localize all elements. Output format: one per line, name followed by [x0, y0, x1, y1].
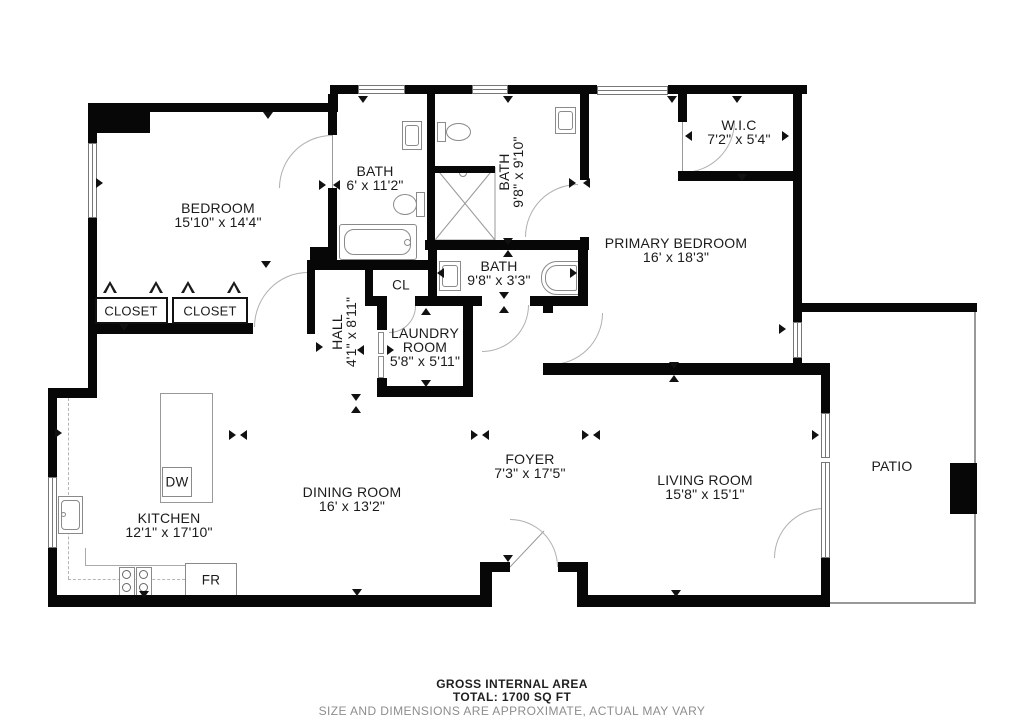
wall [678, 94, 687, 122]
fr-label: FR [202, 573, 220, 588]
marker-icon [499, 292, 509, 299]
marker-icon [139, 591, 149, 598]
sliding-door-window [821, 462, 830, 558]
room-name: LIVING ROOM [657, 473, 753, 487]
room-name: KITCHEN [125, 511, 212, 525]
marker-icon [669, 362, 679, 369]
room-name: BATH [497, 136, 511, 207]
counter-line [85, 548, 86, 565]
wall [377, 296, 387, 330]
wall [88, 103, 333, 112]
closet-label: CLOSET [104, 304, 157, 319]
wall [577, 562, 588, 607]
toilet-bowl [446, 123, 471, 141]
footer-disclaimer: SIZE AND DIMENSIONS ARE APPROXIMATE, ACT… [0, 705, 1024, 718]
bathtub-inner [344, 229, 411, 255]
room-dims: 9'8" x 3'3" [467, 273, 530, 287]
wall [580, 94, 589, 180]
wall [88, 323, 253, 334]
closet-label: CLOSET [183, 304, 236, 319]
marker-icon [499, 306, 509, 313]
room-dims: 7'2" x 5'4" [707, 132, 770, 146]
wall [330, 85, 358, 94]
marker-icon [333, 180, 340, 190]
door-arc [254, 272, 308, 327]
patio-column [950, 463, 977, 514]
room-dims: 16' x 13'2" [303, 499, 402, 513]
faucet-icon [404, 239, 411, 246]
room-dims: 4'1" x 8'11" [344, 297, 358, 367]
room-dims: 7'3" x 17'5" [494, 466, 565, 480]
marker-icon [669, 375, 679, 382]
room-name: FOYER [494, 452, 565, 466]
cl-label: CL [392, 278, 410, 293]
room-name: W.I.C [707, 118, 770, 132]
wall [328, 94, 337, 135]
wall [427, 166, 495, 173]
marker-icon [437, 268, 444, 278]
marker-icon [779, 324, 786, 334]
marker-icon [119, 324, 129, 331]
marker-icon [261, 261, 271, 268]
room-dims: 16' x 18'3" [605, 250, 748, 264]
room-label-hall: HALL 4'1" x 8'11" [330, 297, 358, 367]
room-label-bedroom: BEDROOM 15'10" x 14'4" [174, 201, 261, 229]
burner-icon [139, 570, 148, 579]
wall [415, 296, 463, 306]
toilet-tank [416, 192, 425, 217]
wall [543, 363, 830, 375]
marker-icon [570, 268, 577, 278]
sink-basin [405, 125, 419, 146]
room-label-dining: DINING ROOM 16' x 13'2" [303, 485, 402, 513]
room-name: PRIMARY BEDROOM [605, 236, 748, 250]
room-label-bath1: BATH 6' x 11'2" [346, 164, 403, 192]
room-dims: 6' x 11'2" [346, 178, 403, 192]
wall [307, 270, 315, 334]
marker-icon [351, 406, 361, 413]
room-label-living: LIVING ROOM 15'8" x 15'1" [657, 473, 753, 501]
burner-icon [122, 583, 131, 592]
room-name: BATH [346, 164, 403, 178]
marker-icon [229, 430, 236, 440]
marker-icon [471, 430, 478, 440]
faucet-icon [61, 512, 66, 517]
wall [793, 85, 802, 312]
sink-basin [442, 265, 458, 287]
footer: GROSS INTERNAL AREA TOTAL: 1700 SQ FT SI… [0, 678, 1024, 718]
wall [793, 312, 802, 322]
marker-icon [582, 430, 589, 440]
wall [558, 562, 577, 572]
marker-icon [263, 112, 273, 119]
window [597, 86, 668, 95]
hanger-icon [181, 281, 195, 293]
counter-line [68, 398, 69, 579]
marker-icon [732, 96, 742, 103]
wall [543, 296, 553, 313]
marker-icon [421, 308, 431, 315]
marker-icon [316, 342, 323, 352]
marker-icon [358, 96, 368, 103]
wall [428, 250, 437, 296]
marker-icon [685, 131, 692, 141]
room-label-foyer: FOYER 7'3" x 17'5" [494, 452, 565, 480]
window [48, 477, 57, 548]
wall [492, 562, 510, 572]
wall [48, 595, 480, 607]
window [358, 85, 405, 94]
room-name: BATH [467, 259, 530, 273]
window [793, 322, 802, 358]
marker-icon [352, 589, 362, 596]
marker-icon [96, 178, 103, 188]
hanger-icon [103, 281, 117, 293]
floor-plan: BEDROOM 15'10" x 14'4" BATH 6' x 11'2" B… [0, 0, 1024, 723]
wall [307, 260, 430, 270]
wall [668, 85, 807, 94]
toilet-tank [437, 122, 446, 142]
room-name: HALL [330, 297, 344, 367]
marker-icon [503, 238, 513, 245]
wall [480, 562, 492, 607]
marker-icon [671, 590, 681, 597]
room-label-patio: PATIO [872, 459, 913, 473]
door-arc [551, 313, 603, 365]
dw-label: DW [166, 475, 189, 490]
wall [328, 188, 337, 247]
marker-icon [593, 430, 600, 440]
room-dims: 15'8" x 15'1" [657, 487, 753, 501]
room-label-primary-bedroom: PRIMARY BEDROOM 16' x 18'3" [605, 236, 748, 264]
door-arc [774, 508, 824, 558]
marker-icon [812, 430, 819, 440]
wall [377, 386, 473, 397]
toilet-bowl [393, 194, 417, 215]
wall [578, 250, 588, 296]
marker-icon [240, 430, 247, 440]
marker-icon [503, 96, 513, 103]
marker-icon [503, 555, 513, 562]
wall [793, 303, 977, 312]
room-name: BEDROOM [174, 201, 261, 215]
room-dims: 15'10" x 14'4" [174, 215, 261, 229]
room-label-bath2: BATH 9'8" x 9'10" [497, 136, 525, 207]
wall [588, 595, 830, 607]
marker-icon [351, 394, 361, 401]
marker-icon [737, 174, 747, 181]
room-name: PATIO [872, 459, 913, 473]
hanger-icon [227, 281, 241, 293]
room-name: DINING ROOM [303, 485, 402, 499]
door-leaf [682, 120, 683, 171]
marker-icon [482, 430, 489, 440]
room-label-wic: W.I.C 7'2" x 5'4" [707, 118, 770, 146]
hanger-icon [149, 281, 163, 293]
room-dims: 9'8" x 9'10" [511, 136, 525, 207]
room-label-laundry: LAUNDRY ROOM 5'8" x 5'11" [379, 326, 471, 368]
door-arc [525, 184, 578, 237]
burner-icon [122, 570, 131, 579]
marker-icon [667, 96, 677, 103]
marker-icon [319, 180, 326, 190]
window [821, 413, 830, 458]
wall [530, 296, 588, 306]
marker-icon [569, 178, 576, 188]
room-dims: 12'1" x 17'10" [125, 525, 212, 539]
patio-edge [830, 602, 976, 604]
footer-total: TOTAL: 1700 SQ FT [0, 691, 1024, 704]
patio-edge [974, 312, 976, 604]
room-dims: 5'8" x 5'11" [379, 354, 471, 368]
room-label-bath3: BATH 9'8" x 3'3" [467, 259, 530, 287]
room-name: LAUNDRY ROOM [379, 326, 471, 354]
marker-icon [421, 380, 431, 387]
marker-icon [503, 250, 513, 257]
wall [821, 375, 830, 413]
wall [48, 548, 57, 607]
wall [88, 103, 97, 143]
marker-icon [583, 178, 590, 188]
marker-icon [782, 131, 789, 141]
wall [508, 85, 597, 94]
wall [405, 85, 472, 94]
marker-icon [55, 428, 62, 438]
counter-line [85, 565, 185, 566]
entry-door-arc [510, 519, 558, 567]
sink-basin [558, 111, 573, 130]
window [472, 85, 508, 94]
room-label-kitchen: KITCHEN 12'1" x 17'10" [125, 511, 212, 539]
